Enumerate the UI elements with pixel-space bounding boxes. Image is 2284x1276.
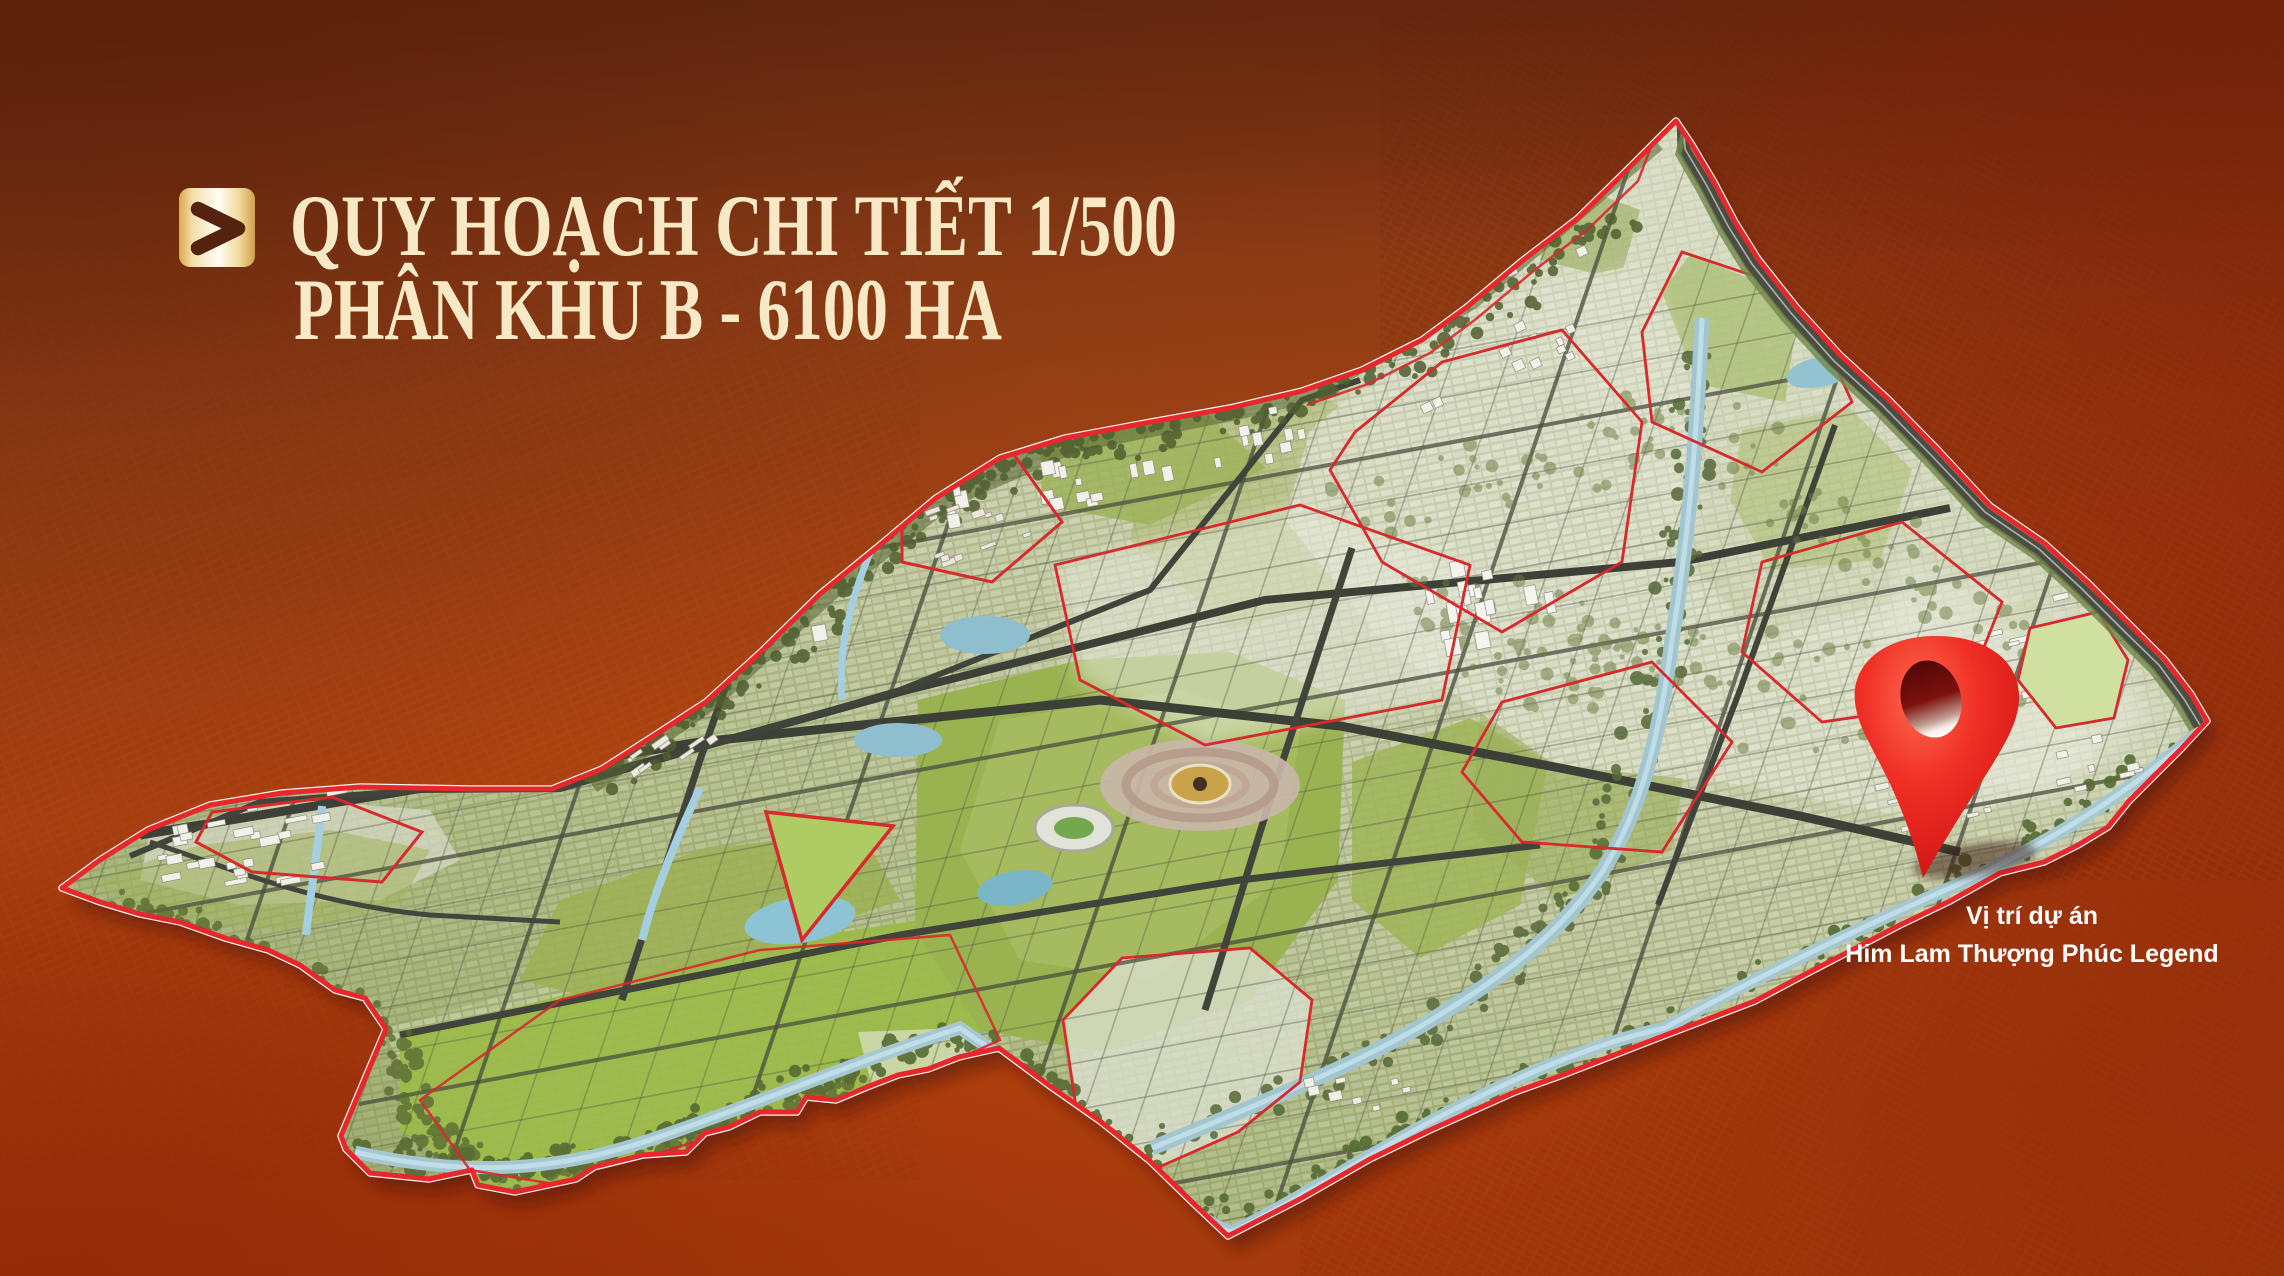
svg-text:QUY HOẠCH CHI TIẾT 1/500: QUY HOẠCH CHI TIẾT 1/500 [290, 175, 1177, 275]
svg-text:PHÂN KHU B - 6100 HA: PHÂN KHU B - 6100 HA [294, 262, 1002, 359]
svg-text:Him Lam Thượng Phúc Legend: Him Lam Thượng Phúc Legend [1845, 940, 2218, 968]
svg-text:Vị trí dự án: Vị trí dự án [1966, 902, 2098, 930]
